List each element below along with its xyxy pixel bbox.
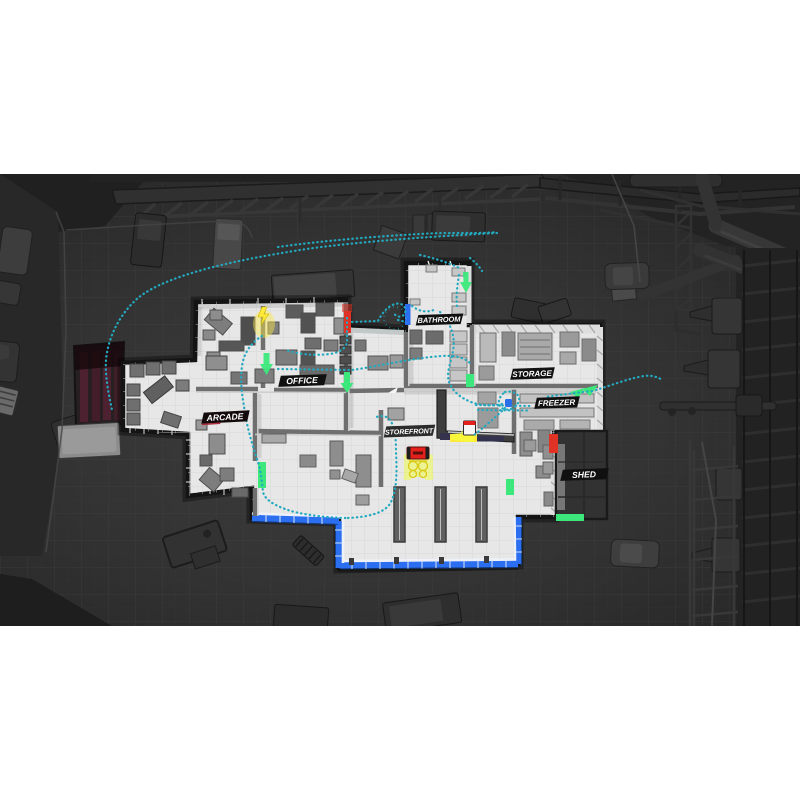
svg-text:FREEZER: FREEZER [538,398,576,408]
svg-text:ARCADE: ARCADE [205,411,244,423]
svg-text:OFFICE: OFFICE [286,375,318,386]
svg-text:SHED: SHED [572,469,596,480]
svg-text:STORAGE: STORAGE [512,369,552,379]
svg-text:BATHROOM: BATHROOM [417,314,461,325]
